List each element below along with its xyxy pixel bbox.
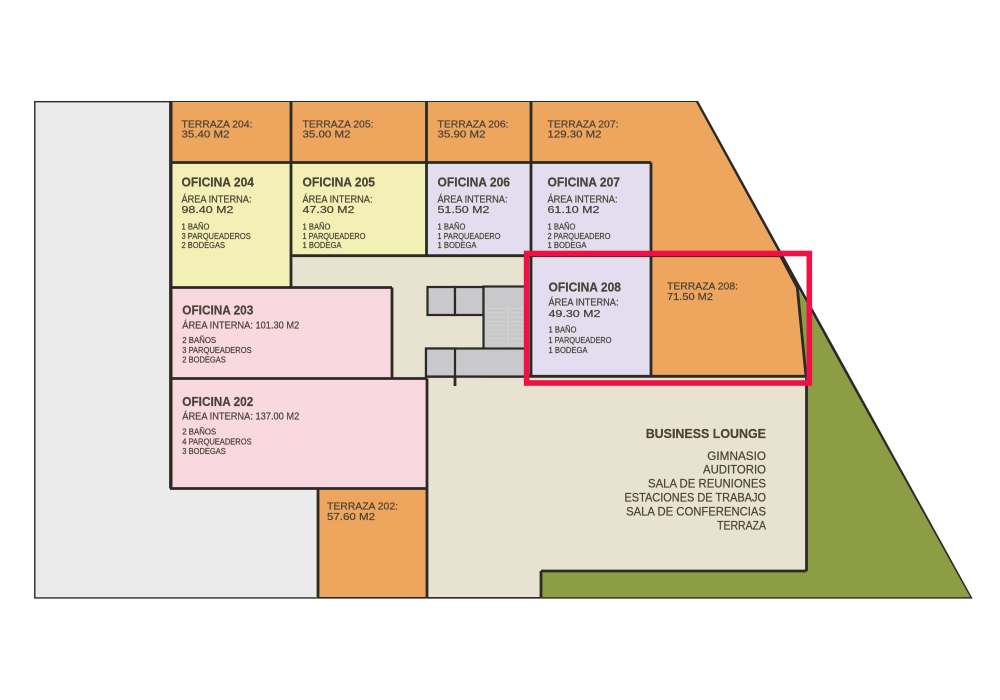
svg-text:51.50 M2: 51.50 M2 (438, 205, 490, 216)
svg-text:TERRAZA 208:: TERRAZA 208: (667, 282, 738, 293)
svg-text:3 BODEGAS: 3 BODEGAS (182, 447, 226, 456)
svg-text:OFICINA 204: OFICINA 204 (182, 175, 255, 190)
svg-text:2 BAÑOS: 2 BAÑOS (182, 427, 216, 437)
svg-text:ÁREA INTERNA: 137.00 M2: ÁREA INTERNA: 137.00 M2 (182, 410, 299, 423)
svg-text:ÁREA INTERNA:: ÁREA INTERNA: (548, 192, 618, 205)
svg-text:OFICINA 205: OFICINA 205 (303, 175, 376, 190)
svg-text:129.30 M2: 129.30 M2 (548, 130, 602, 141)
svg-text:1 PARQUEADERO: 1 PARQUEADERO (303, 232, 366, 241)
svg-text:GIMNASIO: GIMNASIO (707, 449, 766, 463)
svg-text:1 BAÑO: 1 BAÑO (303, 222, 331, 232)
svg-text:1 PARQUEADERO: 1 PARQUEADERO (549, 336, 612, 345)
svg-text:4 PARQUEADEROS: 4 PARQUEADEROS (182, 437, 252, 446)
svg-text:1 BODEGA: 1 BODEGA (438, 241, 477, 250)
svg-text:3 PARQUEADEROS: 3 PARQUEADEROS (182, 346, 252, 355)
svg-text:35.40 M2: 35.40 M2 (182, 130, 230, 141)
svg-text:ÁREA INTERNA:: ÁREA INTERNA: (303, 192, 373, 205)
svg-text:71.50 M2: 71.50 M2 (667, 292, 713, 303)
svg-text:OFICINA 203: OFICINA 203 (182, 303, 253, 318)
svg-text:ESTACIONES DE TRABAJO: ESTACIONES DE TRABAJO (625, 491, 767, 505)
svg-text:BUSINESS LOUNGE: BUSINESS LOUNGE (646, 426, 766, 441)
svg-text:3 PARQUEADEROS: 3 PARQUEADEROS (182, 232, 252, 241)
svg-text:49.30 M2: 49.30 M2 (549, 309, 601, 320)
svg-text:AUDITORIO: AUDITORIO (703, 463, 766, 477)
svg-text:98.40 M2: 98.40 M2 (182, 205, 234, 216)
svg-text:1 BAÑO: 1 BAÑO (549, 325, 577, 335)
svg-text:2 BODEGAS: 2 BODEGAS (182, 241, 226, 250)
svg-text:1 PARQUEADERO: 1 PARQUEADERO (438, 232, 501, 241)
svg-text:OFICINA 207: OFICINA 207 (548, 175, 621, 190)
svg-text:SALA DE REUNIONES: SALA DE REUNIONES (648, 477, 766, 491)
svg-text:ÁREA INTERNA:: ÁREA INTERNA: (438, 192, 508, 205)
svg-text:35.90 M2: 35.90 M2 (438, 130, 486, 141)
svg-text:2 PARQUEADERO: 2 PARQUEADERO (548, 232, 611, 241)
svg-text:1 BODEGA: 1 BODEGA (303, 241, 342, 250)
svg-text:TERRAZA: TERRAZA (717, 519, 767, 533)
svg-text:ÁREA INTERNA:: ÁREA INTERNA: (549, 296, 619, 309)
svg-text:2 BAÑOS: 2 BAÑOS (182, 335, 216, 345)
svg-text:OFICINA 208: OFICINA 208 (549, 279, 622, 294)
svg-text:1 BAÑO: 1 BAÑO (182, 222, 210, 232)
svg-text:SALA DE CONFERENCIAS: SALA DE CONFERENCIAS (626, 505, 766, 519)
svg-text:47.30 M2: 47.30 M2 (303, 205, 355, 216)
svg-text:OFICINA 206: OFICINA 206 (438, 175, 511, 190)
svg-text:OFICINA 202: OFICINA 202 (182, 394, 253, 409)
svg-text:1 BODEGA: 1 BODEGA (548, 241, 587, 250)
svg-text:61.10 M2: 61.10 M2 (548, 205, 600, 216)
svg-text:ÁREA INTERNA:: ÁREA INTERNA: (182, 192, 252, 205)
svg-text:57.60 M2: 57.60 M2 (327, 512, 375, 523)
svg-text:1 BODEGA: 1 BODEGA (549, 346, 588, 355)
svg-text:1 BAÑO: 1 BAÑO (548, 222, 576, 232)
svg-text:2 BODEGAS: 2 BODEGAS (182, 355, 226, 364)
svg-text:ÁREA INTERNA: 101.30 M2: ÁREA INTERNA: 101.30 M2 (182, 318, 299, 331)
svg-text:35.00 M2: 35.00 M2 (303, 130, 351, 141)
svg-text:TERRAZA 202:: TERRAZA 202: (327, 502, 398, 513)
svg-text:1 BAÑO: 1 BAÑO (438, 222, 466, 232)
